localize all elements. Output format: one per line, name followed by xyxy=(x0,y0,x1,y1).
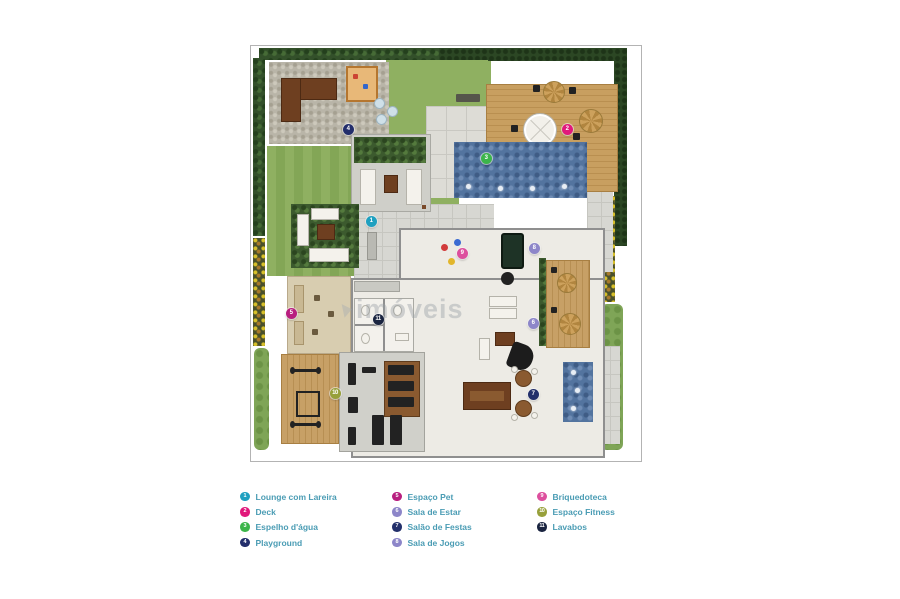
plan-marker-6: 6 xyxy=(528,318,539,329)
plan-marker-2: 2 xyxy=(562,124,573,135)
legend-badge-7: 7 xyxy=(392,522,402,532)
legend-label-9: Briquedoteca xyxy=(553,492,607,502)
plan-marker-3: 3 xyxy=(481,153,492,164)
plan-marker-11: 11 xyxy=(373,314,384,325)
legend-item-9: 9Briquedoteca xyxy=(537,489,615,504)
plan-marker-4: 4 xyxy=(343,124,354,135)
legend-item-11: 11Lavabos xyxy=(537,520,615,535)
legend-badge-8: 8 xyxy=(392,538,402,548)
legend-badge-5: 5 xyxy=(392,492,402,502)
legend-label-4: Playground xyxy=(256,538,303,548)
plan-markers-layer: 1234567891011 xyxy=(251,46,641,461)
legend-item-6: 6Sala de Estar xyxy=(392,504,472,519)
legend-label-11: Lavabos xyxy=(553,522,588,532)
legend-item-4: 4Playground xyxy=(240,535,337,550)
legend-badge-10: 10 xyxy=(537,507,547,517)
legend-badge-1: 1 xyxy=(240,492,250,502)
legend-label-1: Lounge com Lareira xyxy=(256,492,337,502)
legend-badge-6: 6 xyxy=(392,507,402,517)
legend-label-2: Deck xyxy=(256,507,276,517)
legend-column-2: 5Espaço Pet6Sala de Estar7Salão de Festa… xyxy=(392,489,472,550)
legend-label-3: Espelho d'água xyxy=(256,522,318,532)
legend-label-8: Sala de Jogos xyxy=(408,538,465,548)
plan-marker-7: 7 xyxy=(528,389,539,400)
legend-column-3: 9Briquedoteca10Espaço Fitness11Lavabos xyxy=(537,489,615,535)
legend-item-3: 3Espelho d'água xyxy=(240,520,337,535)
legend-badge-3: 3 xyxy=(240,522,250,532)
floor-plan-page: imóveis 1234567891011 1Lounge com Lareir… xyxy=(0,0,900,599)
legend-item-7: 7Salão de Festas xyxy=(392,520,472,535)
legend-label-10: Espaço Fitness xyxy=(553,507,615,517)
legend-badge-4: 4 xyxy=(240,538,250,548)
legend-label-5: Espaço Pet xyxy=(408,492,454,502)
legend-item-5: 5Espaço Pet xyxy=(392,489,472,504)
legend-item-8: 8Sala de Jogos xyxy=(392,535,472,550)
plan-marker-9: 9 xyxy=(457,248,468,259)
legend-item-10: 10Espaço Fitness xyxy=(537,504,615,519)
plan-marker-10: 10 xyxy=(330,388,341,399)
legend: 1Lounge com Lareira2Deck3Espelho d'água4… xyxy=(240,489,680,561)
plan-marker-5: 5 xyxy=(286,308,297,319)
legend-item-2: 2Deck xyxy=(240,504,337,519)
site-plan: imóveis 1234567891011 xyxy=(250,45,642,462)
legend-label-6: Sala de Estar xyxy=(408,507,461,517)
legend-column-1: 1Lounge com Lareira2Deck3Espelho d'água4… xyxy=(240,489,337,550)
legend-badge-9: 9 xyxy=(537,492,547,502)
legend-label-7: Salão de Festas xyxy=(408,522,472,532)
legend-badge-2: 2 xyxy=(240,507,250,517)
plan-marker-8: 8 xyxy=(529,243,540,254)
legend-badge-11: 11 xyxy=(537,522,547,532)
legend-item-1: 1Lounge com Lareira xyxy=(240,489,337,504)
plan-marker-1: 1 xyxy=(366,216,377,227)
